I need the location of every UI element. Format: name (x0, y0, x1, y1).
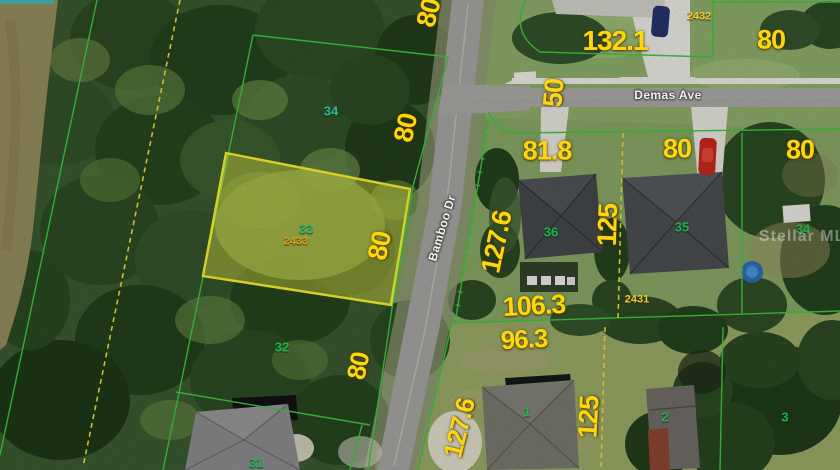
map-imagery (0, 0, 840, 470)
lot-34-west: 34 (324, 105, 338, 118)
dim-106-3: 106.3 (502, 291, 566, 321)
aerial-parcel-map[interactable]: 80 132.1 80 50 80 81.8 80 80 127.6 125 8… (0, 0, 840, 470)
lot-3: 3 (781, 411, 788, 424)
dim-80-lot35: 80 (663, 136, 691, 163)
watermark: Stellar MLS (759, 229, 840, 245)
dim-125-n: 125 (594, 204, 622, 247)
dim-81-8: 81.8 (523, 138, 572, 165)
dim-80-lot34w: 80 (390, 111, 422, 144)
lot-32: 32 (275, 341, 289, 354)
parcel-2432: 2432 (687, 12, 711, 23)
dim-80-lot33: 80 (364, 229, 396, 262)
lot-33: 33 (299, 223, 313, 236)
dim-80-ne: 80 (757, 27, 785, 54)
dim-132-1: 132.1 (582, 27, 647, 55)
lot-1: 1 (523, 406, 530, 419)
dim-50: 50 (539, 78, 568, 108)
lot-36: 36 (544, 226, 558, 239)
dim-80-lot34e: 80 (786, 137, 814, 164)
lot-2: 2 (661, 411, 668, 424)
lot-35: 35 (675, 221, 689, 234)
dim-96-3: 96.3 (500, 325, 548, 353)
parcel-2431: 2431 (625, 295, 649, 306)
lot-31: 31 (249, 457, 263, 470)
parcel-2433: 2433 (284, 237, 308, 248)
dim-125-s: 125 (574, 395, 603, 438)
dim-80-lot32: 80 (342, 350, 373, 382)
map-edge-artifact (0, 0, 54, 4)
street-label-demas-ave: Demas Ave (634, 89, 701, 101)
